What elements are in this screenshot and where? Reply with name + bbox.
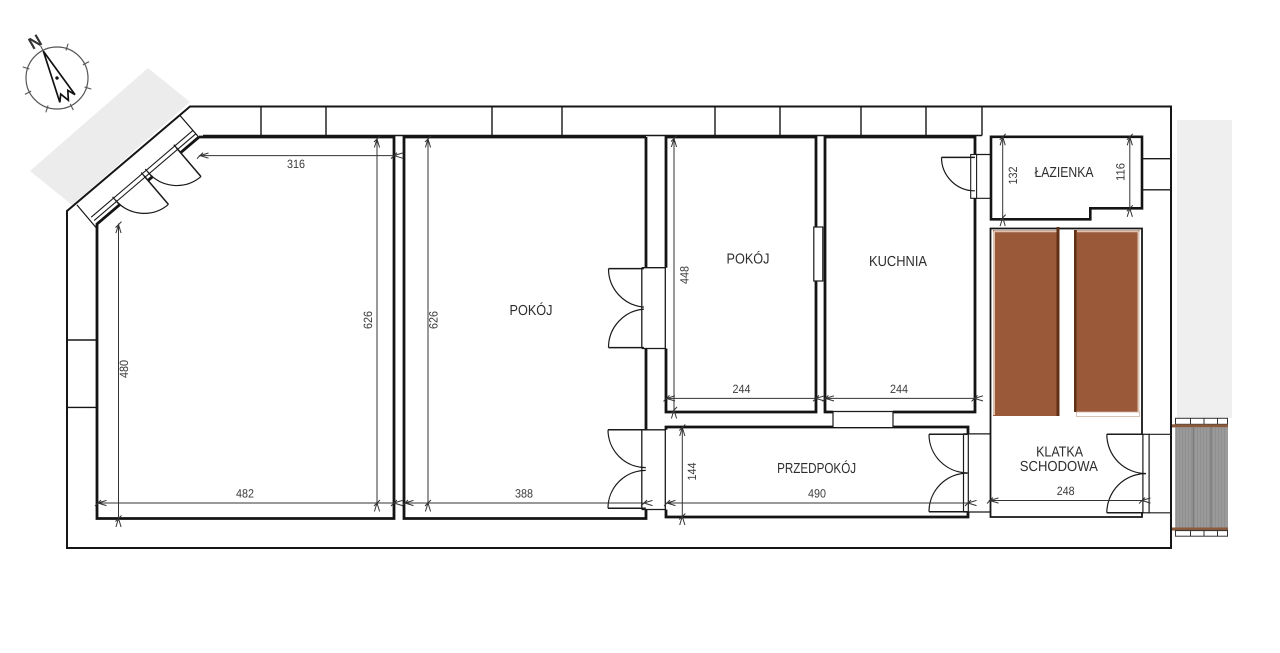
- svg-text:116: 116: [1114, 163, 1128, 181]
- svg-text:448: 448: [678, 266, 692, 284]
- svg-text:316: 316: [287, 157, 305, 171]
- svg-text:KUCHNIA: KUCHNIA: [869, 254, 927, 270]
- svg-text:490: 490: [808, 487, 826, 501]
- svg-text:480: 480: [117, 360, 131, 378]
- svg-text:482: 482: [236, 487, 254, 501]
- svg-text:244: 244: [733, 382, 751, 396]
- svg-text:388: 388: [515, 487, 533, 501]
- svg-text:248: 248: [1057, 484, 1075, 498]
- svg-text:244: 244: [890, 382, 908, 396]
- svg-text:POKÓJ: POKÓJ: [510, 302, 553, 319]
- svg-text:144: 144: [685, 462, 699, 480]
- svg-text:KLATKA: KLATKA: [1036, 444, 1083, 460]
- svg-text:626: 626: [361, 311, 375, 329]
- svg-text:626: 626: [427, 311, 441, 329]
- svg-text:ŁAZIENKA: ŁAZIENKA: [1035, 165, 1094, 181]
- svg-text:132: 132: [1006, 166, 1020, 184]
- svg-text:SCHODOWA: SCHODOWA: [1020, 459, 1098, 475]
- svg-text:PRZEDPOKÓJ: PRZEDPOKÓJ: [777, 460, 856, 477]
- svg-text:POKÓJ: POKÓJ: [727, 251, 770, 268]
